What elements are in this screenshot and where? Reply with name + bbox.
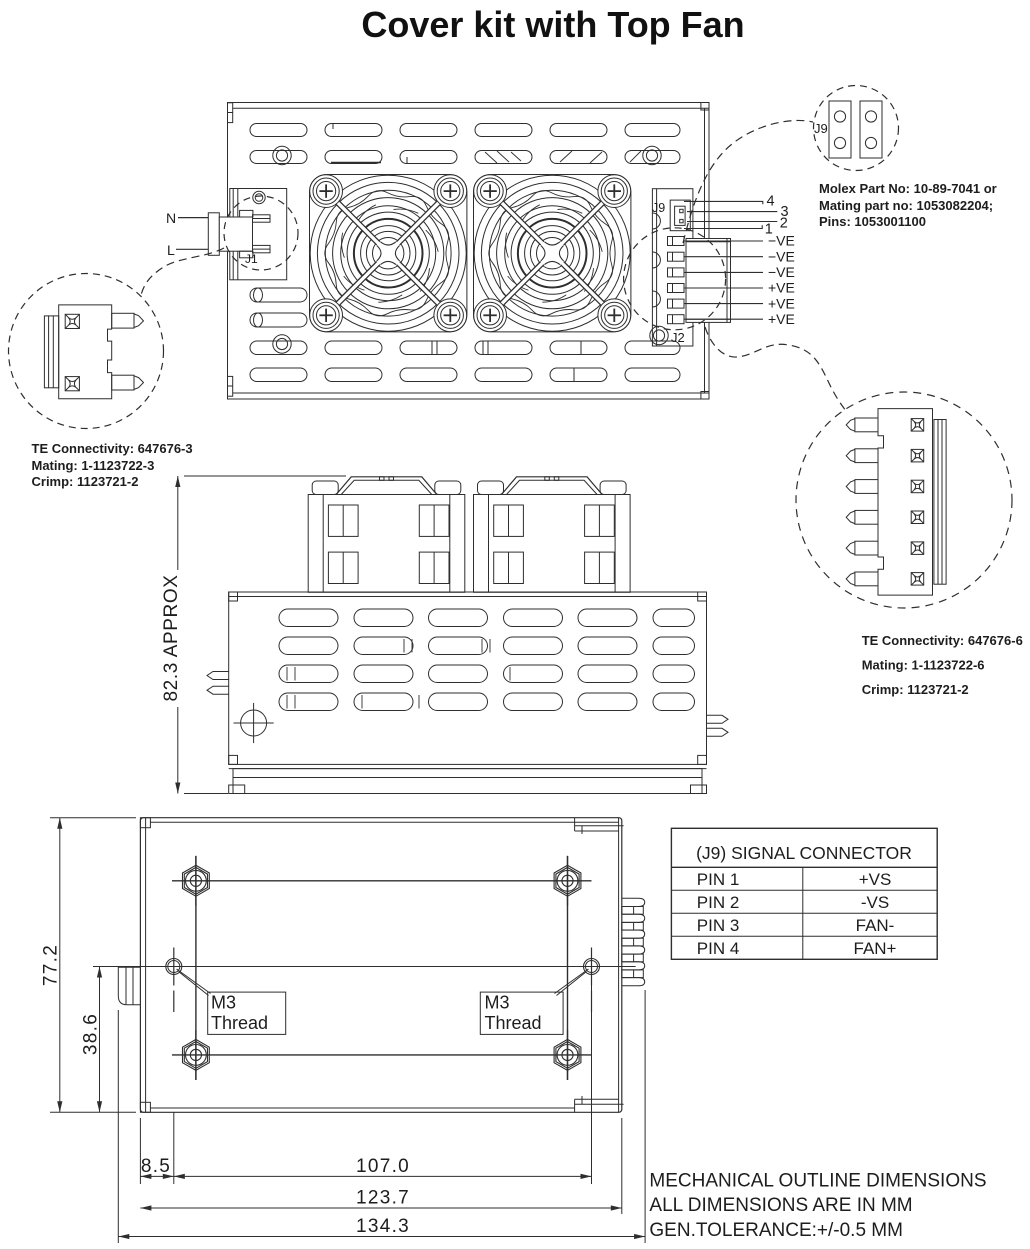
svg-text:Pins: 1053001100: Pins: 1053001100: [819, 214, 926, 229]
svg-text:J9: J9: [814, 121, 828, 136]
svg-text:-VS: -VS: [861, 893, 889, 912]
svg-text:M3: M3: [485, 993, 510, 1013]
svg-text:Mating: 1-1123722-3: Mating: 1-1123722-3: [32, 458, 155, 473]
svg-text:4: 4: [767, 194, 775, 210]
svg-text:M3: M3: [211, 993, 236, 1013]
svg-text:FAN-: FAN-: [856, 916, 895, 935]
svg-text:Crimp: 1123721-2: Crimp: 1123721-2: [862, 682, 969, 697]
svg-text:+VE: +VE: [768, 311, 795, 327]
svg-text:PIN 4: PIN 4: [697, 939, 740, 958]
svg-text:TE Connectivity: 647676-3: TE Connectivity: 647676-3: [32, 441, 193, 456]
svg-text:77.2: 77.2: [41, 944, 62, 986]
svg-text:Molex Part No: 10-89-7041 or: Molex Part No: 10-89-7041 or: [819, 181, 997, 196]
svg-text:Thread: Thread: [485, 1013, 542, 1033]
svg-text:N: N: [166, 210, 176, 226]
svg-text:PIN 3: PIN 3: [697, 916, 740, 935]
svg-text:(J9) SIGNAL CONNECTOR: (J9) SIGNAL CONNECTOR: [696, 843, 912, 863]
svg-text:+VE: +VE: [768, 295, 795, 311]
svg-text:38.6: 38.6: [81, 1013, 102, 1055]
svg-text:107.0: 107.0: [356, 1156, 410, 1177]
svg-text:+VE: +VE: [768, 280, 795, 296]
svg-text:FAN+: FAN+: [854, 939, 897, 958]
svg-text:PIN 1: PIN 1: [697, 870, 740, 889]
svg-text:GEN.TOLERANCE:+/-0.5 MM: GEN.TOLERANCE:+/-0.5 MM: [649, 1220, 903, 1241]
svg-text:J9: J9: [652, 201, 665, 215]
svg-text:−VE: −VE: [768, 248, 795, 264]
svg-text:8.5: 8.5: [141, 1156, 171, 1177]
svg-text:TE Connectivity: 647676-6: TE Connectivity: 647676-6: [862, 633, 1023, 648]
svg-text:134.3: 134.3: [356, 1216, 410, 1237]
svg-text:2: 2: [780, 216, 788, 232]
svg-text:L: L: [167, 242, 175, 258]
svg-text:PIN 2: PIN 2: [697, 893, 740, 912]
svg-text:J1: J1: [245, 252, 258, 266]
svg-text:Mating: 1-1123722-6: Mating: 1-1123722-6: [862, 658, 985, 673]
svg-text:+VS: +VS: [859, 870, 892, 889]
svg-text:123.7: 123.7: [356, 1188, 410, 1209]
svg-text:Crimp: 1123721-2: Crimp: 1123721-2: [32, 474, 139, 489]
svg-text:Cover kit with Top Fan: Cover kit with Top Fan: [361, 4, 744, 45]
svg-text:J2: J2: [671, 330, 685, 345]
svg-text:−VE: −VE: [768, 264, 795, 280]
svg-text:ALL DIMENSIONS ARE IN MM: ALL DIMENSIONS ARE IN MM: [649, 1195, 912, 1216]
svg-text:MECHANICAL OUTLINE DIMENSIONS: MECHANICAL OUTLINE DIMENSIONS: [649, 1171, 986, 1192]
svg-text:82.3 APPROX: 82.3 APPROX: [161, 574, 182, 701]
svg-text:−VE: −VE: [768, 233, 795, 249]
svg-text:Thread: Thread: [211, 1013, 268, 1033]
svg-text:Mating part no: 1053082204;: Mating part no: 1053082204;: [819, 198, 993, 213]
